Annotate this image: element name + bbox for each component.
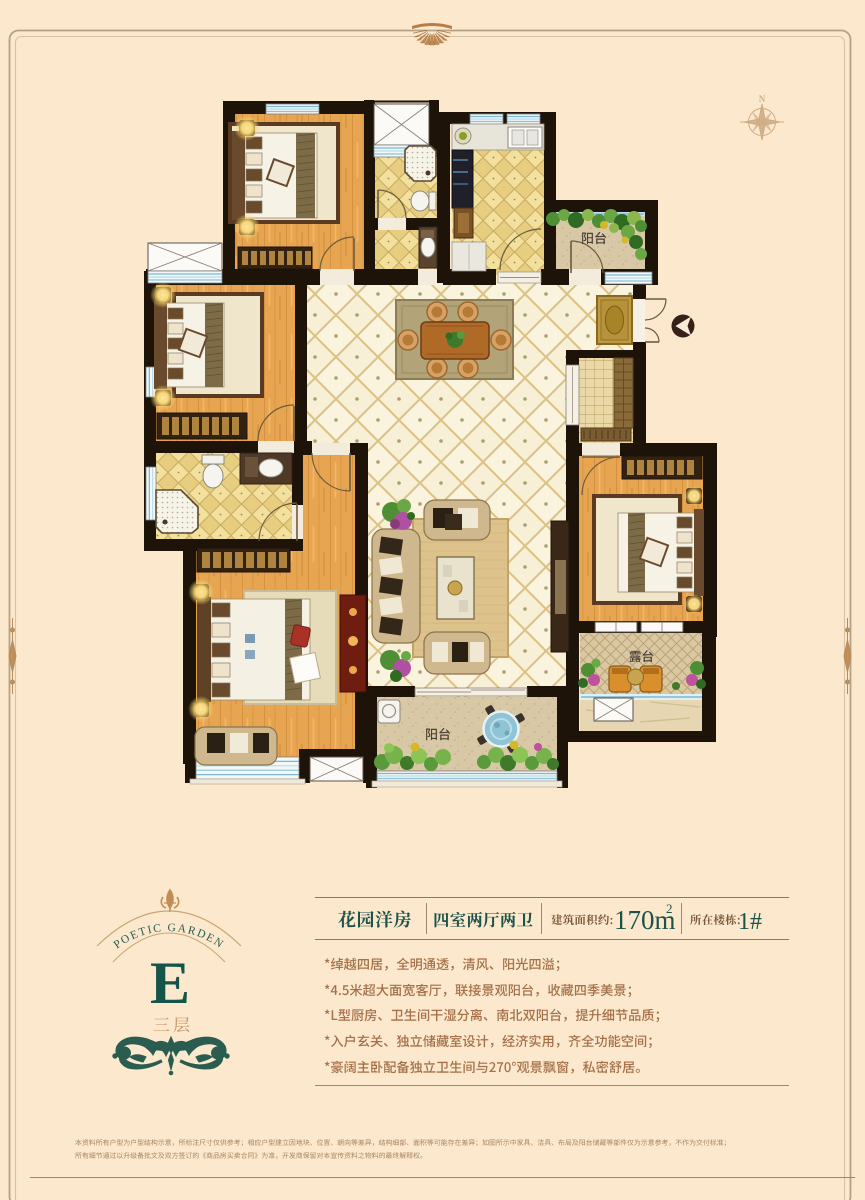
- svg-text:E: E: [150, 950, 190, 1016]
- svg-text:N: N: [759, 94, 766, 104]
- svg-text:2: 2: [666, 901, 673, 916]
- svg-text:1#: 1#: [738, 909, 762, 935]
